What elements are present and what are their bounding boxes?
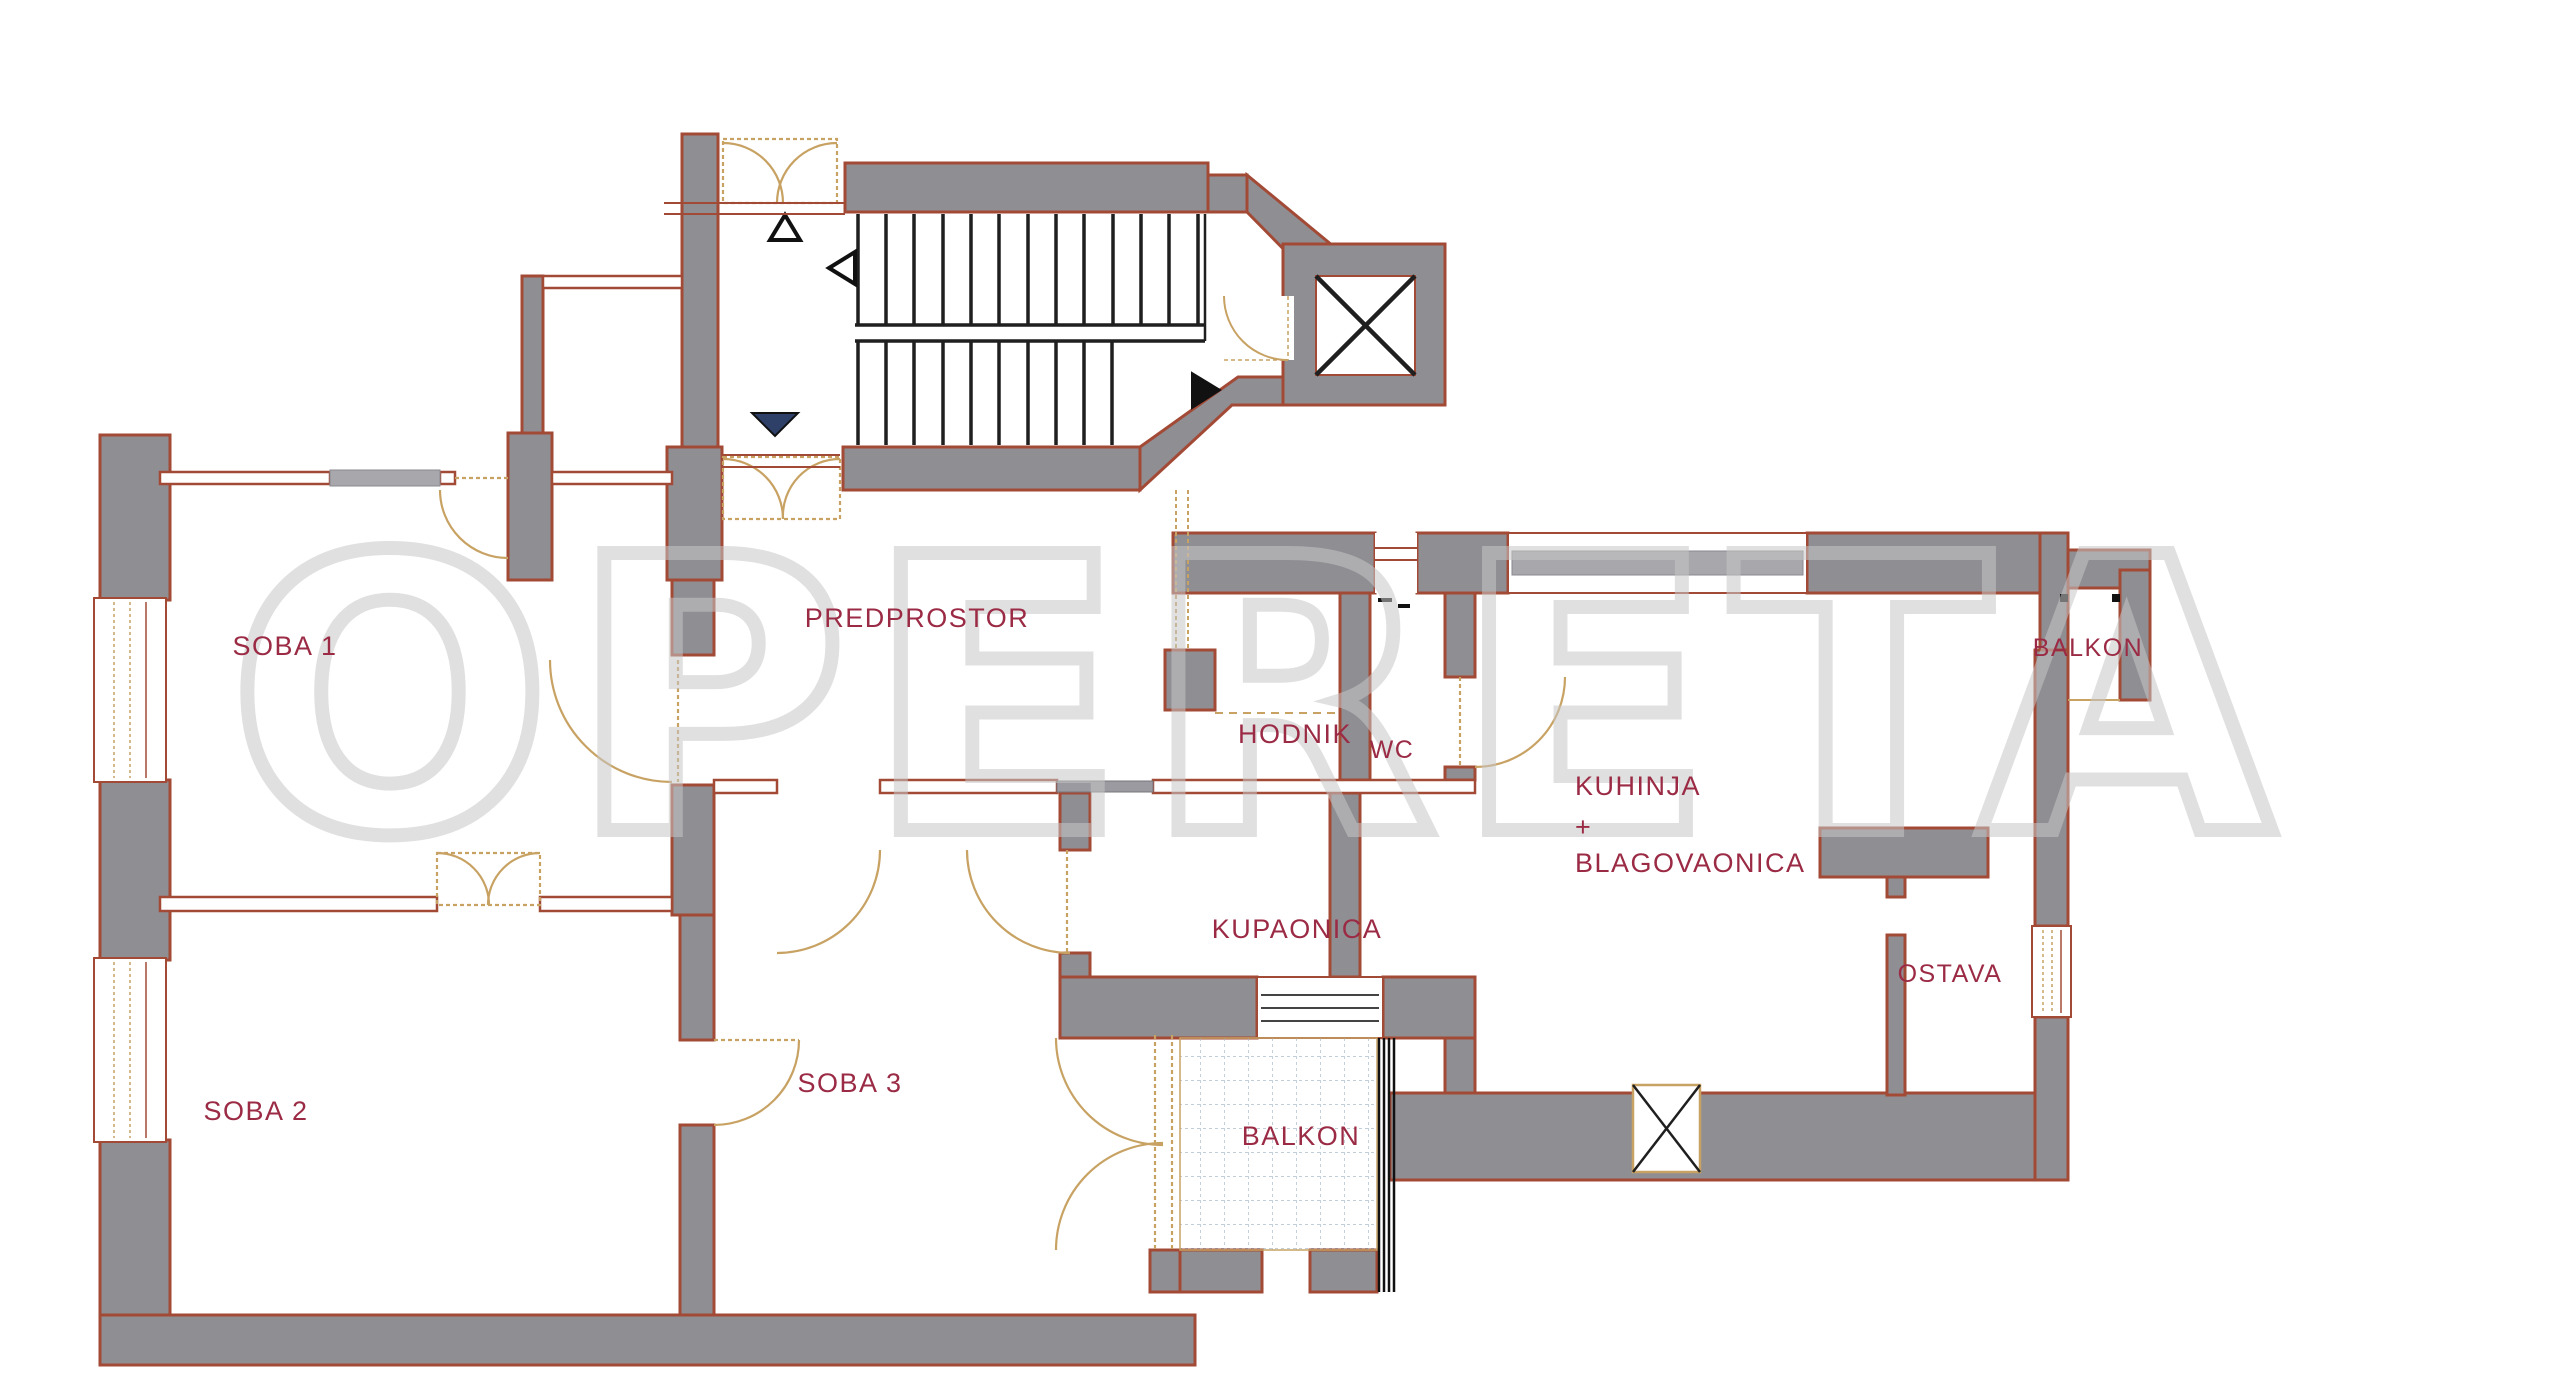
label-soba2: SOBA 2 — [203, 1096, 308, 1126]
window-kitchen-east — [2032, 926, 2071, 1017]
wall-left-top — [100, 435, 170, 600]
label-kuhinja-line2: + — [1575, 812, 1592, 842]
wall-balcony-parapet-left — [1180, 1250, 1262, 1292]
wall-balcony-jamb — [1150, 1250, 1180, 1292]
window-bathroom — [1257, 977, 1383, 1038]
wall-kitchen-bottom — [1390, 1093, 2068, 1180]
label-soba1: SOBA 1 — [232, 631, 337, 661]
label-hodnik: HODNIK — [1238, 719, 1352, 749]
floor-plan-drawing: OPERETA SOBA 1 SOBA 2 SOBA 3 PREDPROSTOR… — [0, 0, 2560, 1400]
wall-bath-bottom-west — [1060, 977, 1257, 1038]
arrow-up-outline-icon — [770, 215, 800, 240]
label-wc: WC — [1370, 736, 1415, 764]
window-soba1 — [94, 598, 166, 782]
shaft-box — [1633, 1085, 1700, 1172]
stair-treads-upper — [858, 214, 1198, 325]
wall-bottom — [100, 1315, 1195, 1365]
wall-center-4 — [680, 1125, 714, 1315]
stair-treads-lower — [858, 341, 1112, 445]
elevator-door-gap — [1280, 296, 1294, 360]
wall-balcony-parapet-right — [1310, 1250, 1377, 1292]
wall-ostava-partition — [1887, 935, 1905, 1095]
wall-left-mid — [100, 780, 170, 960]
label-kuhinja-line1: KUHINJA — [1575, 771, 1701, 801]
wall-niche-top — [543, 276, 682, 288]
wall-bath-left-lower — [1060, 953, 1090, 977]
staircase — [855, 214, 1205, 445]
arrow-left-outline-icon — [829, 252, 855, 284]
label-kupaonica: KUPAONICA — [1212, 914, 1383, 944]
label-ostava: OSTAVA — [1898, 960, 2003, 988]
wall-left-bottom — [100, 1140, 170, 1320]
label-balkon-top: BALKON — [2033, 634, 2143, 662]
label-predprostor: PREDPROSTOR — [805, 603, 1030, 633]
door-balcony-french — [1056, 1035, 1172, 1250]
wall-stair-lobby-left — [682, 134, 718, 447]
label-soba3: SOBA 3 — [797, 1068, 902, 1098]
wall-bath-bottom-east — [1383, 977, 1475, 1038]
elevator — [1224, 276, 1415, 375]
watermark: OPERETA — [228, 477, 2291, 920]
wall-center-3 — [680, 915, 714, 1040]
floor-plan-page: OPERETA SOBA 1 SOBA 2 SOBA 3 PREDPROSTOR… — [0, 0, 2560, 1400]
label-kuhinja-line3: BLAGOVAONICA — [1575, 848, 1806, 878]
wall-stair-top — [845, 163, 1208, 212]
wall-stair-top-step — [1208, 175, 1247, 212]
elevator-door-swing — [1224, 296, 1288, 360]
wall-kitchen-right-lower — [2035, 1017, 2068, 1180]
wall-step-kitchen — [1445, 1038, 1475, 1093]
arrow-down-filled-icon — [752, 413, 798, 436]
door-soba2-soba3 — [714, 1040, 799, 1125]
window-soba2 — [94, 958, 166, 1142]
label-balkon-bottom: BALKON — [1242, 1121, 1361, 1151]
